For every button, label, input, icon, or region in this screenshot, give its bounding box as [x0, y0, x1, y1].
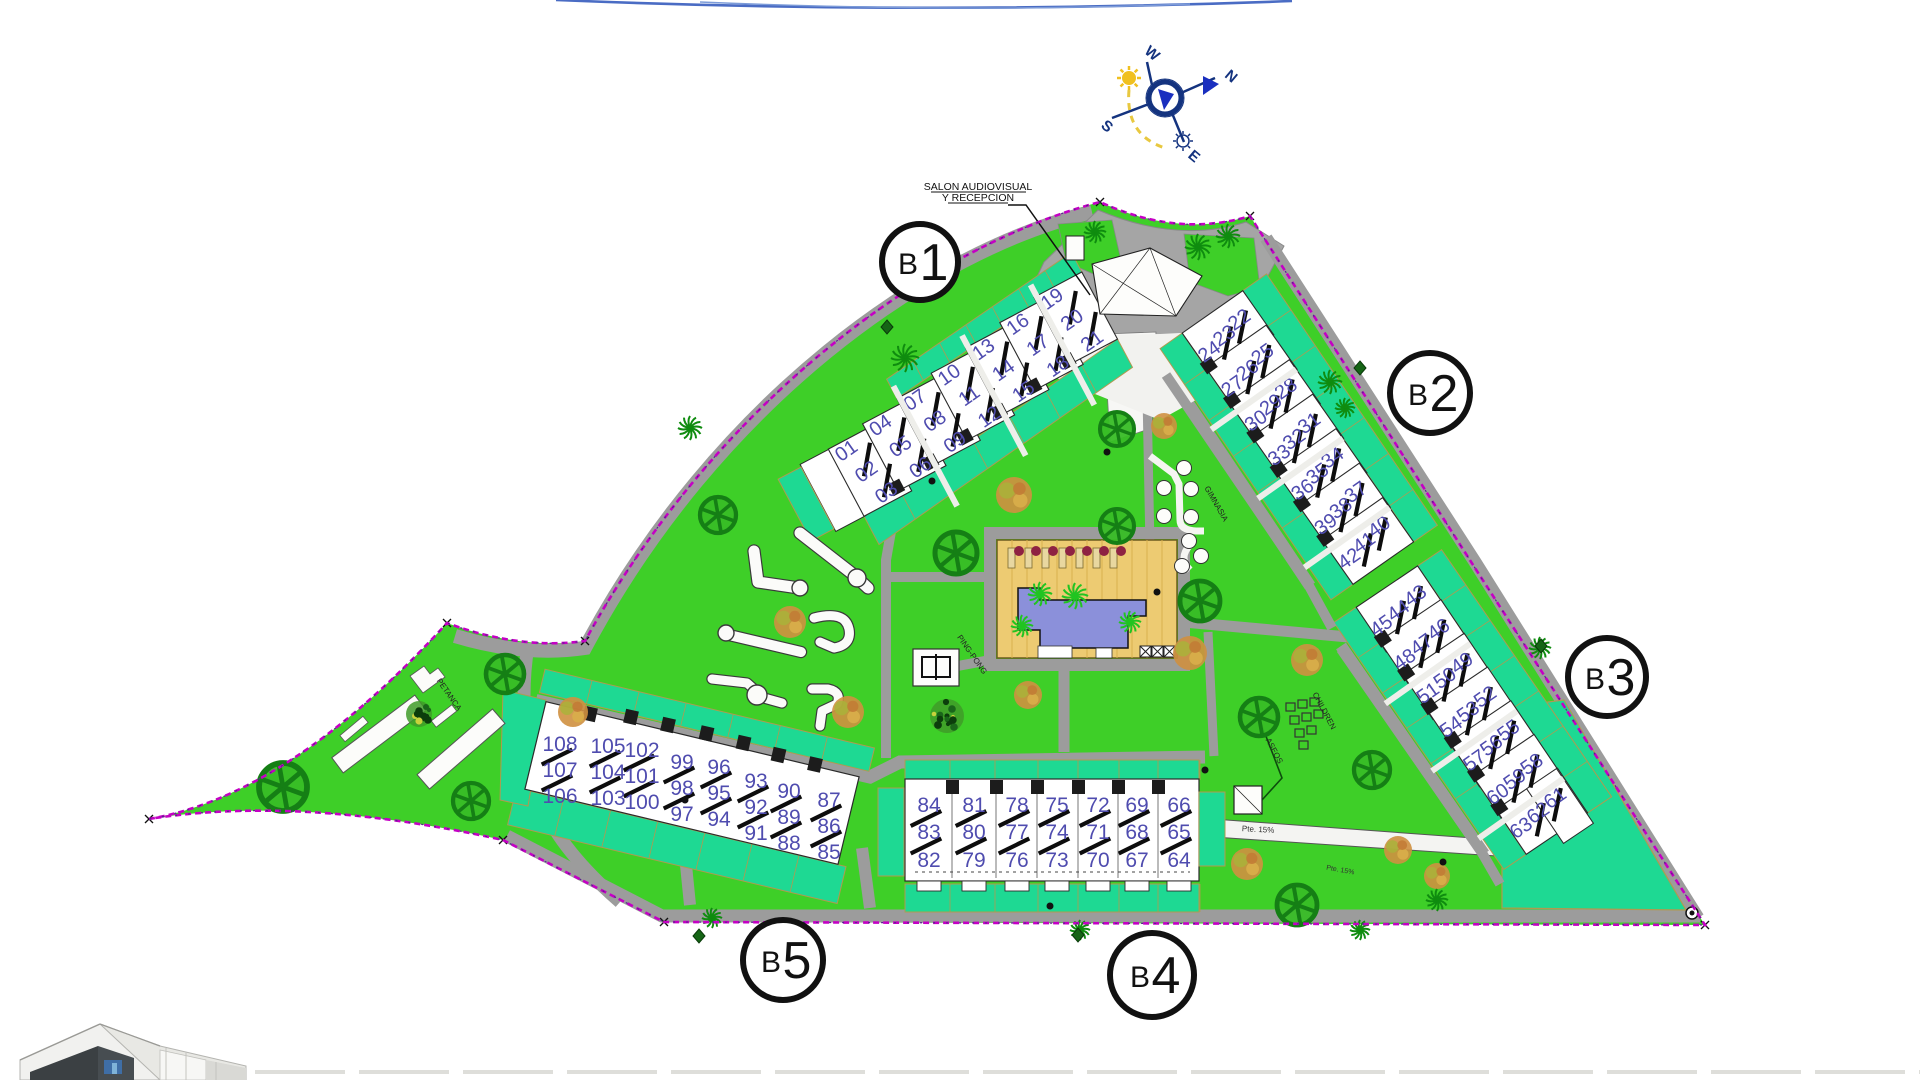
svg-text:B: B	[761, 946, 781, 979]
svg-text:B: B	[1408, 379, 1428, 412]
svg-text:72: 72	[1086, 794, 1109, 817]
svg-text:100: 100	[624, 791, 659, 814]
svg-text:92: 92	[744, 796, 767, 819]
svg-text:85: 85	[817, 841, 840, 864]
svg-text:97: 97	[670, 803, 693, 826]
svg-text:93: 93	[744, 770, 767, 793]
svg-text:88: 88	[777, 832, 800, 855]
svg-text:103: 103	[590, 787, 625, 810]
svg-text:73: 73	[1045, 849, 1068, 872]
svg-text:101: 101	[624, 765, 659, 788]
svg-text:82: 82	[917, 849, 940, 872]
svg-text:75: 75	[1045, 794, 1068, 817]
svg-text:107: 107	[542, 759, 577, 782]
svg-text:66: 66	[1167, 794, 1190, 817]
svg-text:69: 69	[1125, 794, 1148, 817]
svg-text:3: 3	[1607, 649, 1636, 707]
svg-text:102: 102	[624, 739, 659, 762]
svg-text:68: 68	[1125, 821, 1148, 844]
svg-text:B: B	[1130, 961, 1150, 994]
svg-text:71: 71	[1086, 821, 1109, 844]
svg-text:84: 84	[917, 794, 941, 817]
svg-text:67: 67	[1125, 849, 1148, 872]
svg-text:87: 87	[817, 789, 840, 812]
svg-text:76: 76	[1005, 849, 1028, 872]
svg-text:94: 94	[707, 808, 731, 831]
svg-text:4: 4	[1152, 947, 1181, 1005]
svg-text:108: 108	[542, 733, 577, 756]
svg-text:5: 5	[783, 932, 812, 990]
svg-text:74: 74	[1045, 821, 1069, 844]
svg-text:81: 81	[962, 794, 985, 817]
svg-text:95: 95	[707, 782, 730, 805]
svg-text:86: 86	[817, 815, 840, 838]
svg-text:83: 83	[917, 821, 940, 844]
svg-text:96: 96	[707, 756, 730, 779]
svg-text:Pte. 15%: Pte. 15%	[1242, 824, 1275, 835]
svg-text:104: 104	[590, 761, 625, 784]
svg-text:70: 70	[1086, 849, 1109, 872]
svg-text:105: 105	[590, 735, 625, 758]
svg-text:98: 98	[670, 777, 693, 800]
svg-text:1: 1	[920, 234, 949, 292]
svg-text:65: 65	[1167, 821, 1190, 844]
svg-text:77: 77	[1005, 821, 1028, 844]
svg-text:89: 89	[777, 806, 800, 829]
svg-text:80: 80	[962, 821, 985, 844]
svg-text:B: B	[898, 248, 918, 281]
svg-text:91: 91	[744, 822, 767, 845]
svg-text:79: 79	[962, 849, 985, 872]
svg-text:64: 64	[1167, 849, 1191, 872]
svg-text:Y RECEPCION: Y RECEPCION	[942, 192, 1014, 204]
svg-text:78: 78	[1005, 794, 1028, 817]
svg-text:99: 99	[670, 751, 693, 774]
svg-text:2: 2	[1430, 365, 1459, 423]
svg-text:B: B	[1585, 663, 1605, 696]
svg-text:90: 90	[777, 780, 800, 803]
svg-text:106: 106	[542, 785, 577, 808]
